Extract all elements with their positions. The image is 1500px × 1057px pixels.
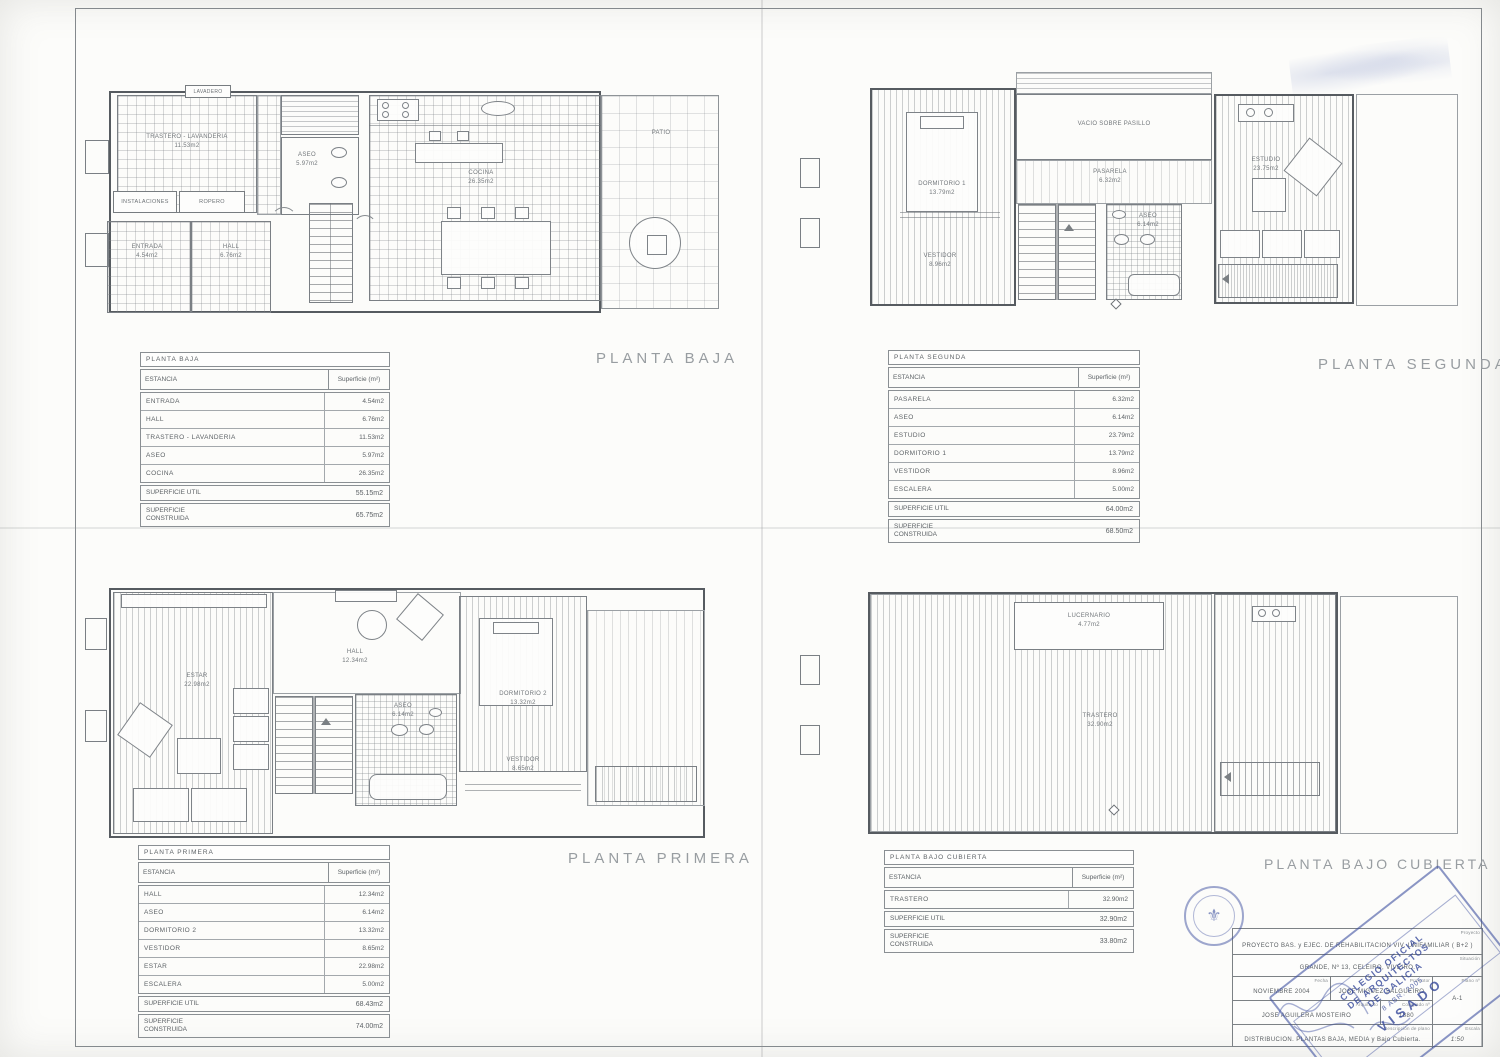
room-label-area: 6.14m2 <box>392 711 414 720</box>
counter-circle <box>1258 609 1266 617</box>
room-label-lucernario: LUCERNARIO 4.77m2 <box>1068 612 1110 630</box>
round-table <box>357 610 387 640</box>
cell-estancia: ESTAR <box>139 958 324 975</box>
table-row: COCINA26.35m2 <box>141 465 389 482</box>
superficie-util-row: SUPERFICIE UTIL 68.43m2 <box>138 996 390 1012</box>
room-label-name: ESTAR <box>184 672 209 681</box>
toilet <box>391 724 408 736</box>
cell-estancia: TRASTERO <box>885 891 1068 908</box>
room-label-name: ENTRADA <box>132 243 163 252</box>
pillow <box>493 622 539 634</box>
room-label-area: 4.54m2 <box>132 252 163 261</box>
cell-estancia: DORMITORIO 1 <box>889 445 1074 462</box>
room-label-area: 6.32m2 <box>1093 177 1127 186</box>
porch-nook <box>800 218 820 248</box>
stair-direction-arrow <box>321 718 331 725</box>
superficie-util-row: SUPERFICIE UTIL 32.90m2 <box>884 911 1134 927</box>
bathtub <box>369 774 447 800</box>
wardrobe-line <box>465 790 581 791</box>
bidet <box>331 177 347 188</box>
chair <box>447 207 461 219</box>
cell-estancia: TRASTERO - LAVANDERIA <box>141 429 324 446</box>
staircase <box>309 203 353 303</box>
pillow <box>920 116 964 129</box>
drawing-sheet: TRASTERO - LAVANDERIA 11.53m2 LAVADERO A… <box>0 0 1500 1057</box>
corridor <box>257 95 281 215</box>
cell-superficie: 5.97m2 <box>324 447 389 464</box>
counter-circle <box>1246 108 1255 117</box>
table-row: ESTAR22.98m2 <box>139 958 389 976</box>
wardrobe-line <box>465 784 581 785</box>
cell-superficie: 32.90m2 <box>1068 891 1133 908</box>
sofa <box>191 788 247 822</box>
construida-value: 74.00m2 <box>207 1020 389 1033</box>
hatched-zone <box>1016 72 1212 94</box>
room-label-aseo: ASEO 5.97m2 <box>296 151 318 169</box>
shelf-arrow <box>1222 274 1229 284</box>
room-entrada <box>107 221 191 313</box>
cell-estancia: PASARELA <box>889 391 1074 408</box>
floorplan-planta-primera: ESTAR 22.98m2 HALL 12.34m2 ASEO 6.14m2 D… <box>85 560 765 845</box>
instalaciones-label: INSTALACIONES <box>121 199 169 205</box>
superficie-construida-row: SUPERFICIE CONSTRUIDA 33.80m2 <box>884 929 1134 953</box>
cell-superficie: 13.79m2 <box>1074 445 1139 462</box>
cell-estancia: ASEO <box>139 904 324 921</box>
room-label-area: 26.35m2 <box>468 178 493 187</box>
circular-stamp-inner: ⚜ <box>1193 895 1235 937</box>
cell-superficie: 11.53m2 <box>324 429 389 446</box>
room-patio <box>601 95 719 309</box>
room-label-area: 12.34m2 <box>342 657 367 666</box>
cell-superficie: 5.00m2 <box>324 976 389 993</box>
floorplan-planta-segunda: DORMITORIO 1 13.79m2 VESTIDOR 8.96m2 VAC… <box>800 58 1465 335</box>
header-superficie: Superficie (m²) <box>1072 868 1133 887</box>
kitchen-sink <box>481 101 515 116</box>
room-label-name: PATIO <box>652 129 671 138</box>
cell-superficie: 13.32m2 <box>324 922 389 939</box>
room-label-area: 8.65m2 <box>506 765 539 774</box>
cell-estancia: HALL <box>139 886 324 903</box>
table-title: PLANTA SEGUNDA <box>888 350 1140 365</box>
header-superficie: Superficie (m²) <box>328 863 389 882</box>
room-label-name: TRASTERO - LAVANDERIA <box>146 133 227 142</box>
util-value: 55.15m2 <box>209 487 389 500</box>
table-row: ESTUDIO23.79m2 <box>889 427 1139 445</box>
lavadero-label: LAVADERO <box>194 89 223 95</box>
wardrobe-line <box>900 212 1000 213</box>
table-body: TRASTERO32.90m2 <box>884 890 1134 909</box>
room-label-area: 6.14m2 <box>1137 221 1159 230</box>
room-label-name: ASEO <box>296 151 318 160</box>
superficie-util-row: SUPERFICIE UTIL 55.15m2 <box>140 485 390 501</box>
stool <box>457 131 469 141</box>
signature-scribble <box>1270 970 1420 1050</box>
room-label-area: 8.96m2 <box>923 261 956 270</box>
floorplan-planta-bajo-cubierta: LUCERNARIO 4.77m2 TRASTERO 32.90m2 <box>800 560 1465 845</box>
util-value: 68.43m2 <box>207 998 389 1011</box>
sofa <box>133 788 189 822</box>
chair <box>447 277 461 289</box>
table-row: HALL6.76m2 <box>141 411 389 429</box>
table-row: HALL12.34m2 <box>139 886 389 904</box>
label-box-instalaciones: INSTALACIONES <box>113 191 177 213</box>
kitchen-island <box>415 143 503 163</box>
room-label-name: VESTIDOR <box>923 252 956 261</box>
escala-label: Escala <box>1465 1026 1480 1031</box>
table-body: ENTRADA4.54m2 HALL6.76m2 TRASTERO - LAVA… <box>140 392 390 483</box>
sofa <box>1304 230 1340 258</box>
table-body: HALL12.34m2 ASEO6.14m2 DORMITORIO 213.32… <box>138 885 390 994</box>
cell-superficie: 6.14m2 <box>1074 409 1139 426</box>
stair-divider <box>1056 204 1058 300</box>
room-label-estar: ESTAR 22.98m2 <box>184 672 209 690</box>
table-header: ESTANCIA Superficie (m²) <box>140 369 390 390</box>
counter-circle <box>1272 609 1280 617</box>
construida-label: SUPERFICIE CONSTRUIDA <box>139 1015 207 1037</box>
table-row: ASEO5.97m2 <box>141 447 389 465</box>
escala-value: 1:50 <box>1451 1037 1464 1044</box>
cell-estancia: ESCALERA <box>139 976 324 993</box>
cell-superficie: 26.35m2 <box>324 465 389 482</box>
label-box-ropero: ROPERO <box>179 191 245 213</box>
sofa <box>233 744 269 770</box>
construida-label: SUPERFICIE CONSTRUIDA <box>885 930 953 952</box>
bathtub <box>1128 274 1180 296</box>
shelving <box>1220 762 1320 796</box>
room-label-area: 22.98m2 <box>184 681 209 690</box>
cell-superficie: 6.76m2 <box>324 411 389 428</box>
util-label: SUPERFICIE UTIL <box>889 502 957 516</box>
table-title: PLANTA BAJO CUBIERTA <box>884 850 1134 865</box>
room-label-area: 4.77m2 <box>1068 621 1110 630</box>
table-row: ASEO6.14m2 <box>889 409 1139 427</box>
room-label-name: LUCERNARIO <box>1068 612 1110 621</box>
chair <box>515 277 529 289</box>
bidet <box>419 724 434 735</box>
room-label-trastero: TRASTERO 32.90m2 <box>1082 712 1117 730</box>
sofa <box>1262 230 1302 258</box>
room-label-aseo: ASEO 6.14m2 <box>392 702 414 720</box>
room-label-pasarela: PASARELA 6.32m2 <box>1093 168 1127 186</box>
util-label: SUPERFICIE UTIL <box>141 486 209 500</box>
cell-superficie: 6.14m2 <box>324 904 389 921</box>
room-hall <box>191 221 271 313</box>
room-label-dormitorio-2: DORMITORIO 2 13.32m2 <box>499 690 547 708</box>
porch-nook <box>800 655 820 685</box>
open-terrace <box>1356 94 1458 306</box>
porch-nook <box>85 140 109 174</box>
sofa <box>233 716 269 742</box>
room-label-aseo: ASEO 6.14m2 <box>1137 212 1159 230</box>
construida-value: 33.80m2 <box>953 935 1133 948</box>
chair <box>481 207 495 219</box>
counter-circle <box>1264 108 1273 117</box>
room-label-dormitorio-1: DORMITORIO 1 13.79m2 <box>918 180 966 198</box>
superficie-construida-row: SUPERFICIE CONSTRUIDA 65.75m2 <box>140 503 390 527</box>
hatched-zone <box>281 95 359 135</box>
cell-estancia: ASEO <box>889 409 1074 426</box>
porch-nook <box>85 618 107 650</box>
cell-superficie: 5.00m2 <box>1074 481 1139 498</box>
cell-estancia: COCINA <box>141 465 324 482</box>
shelf-arrow <box>1224 772 1231 782</box>
room-label-entrada: ENTRADA 4.54m2 <box>132 243 163 261</box>
ropero-label: ROPERO <box>199 199 225 205</box>
table-row: TRASTERO - LAVANDERIA11.53m2 <box>141 429 389 447</box>
plan-title-bajo-cubierta: PLANTA BAJO CUBIERTA <box>1264 856 1491 872</box>
area-table-planta-primera: PLANTA PRIMERA ESTANCIA Superficie (m²) … <box>138 845 390 1038</box>
table-body: PASARELA6.32m2 ASEO6.14m2 ESTUDIO23.79m2… <box>888 390 1140 499</box>
room-label-estudio: ESTUDIO 23.75m2 <box>1252 156 1281 174</box>
toilet <box>331 147 347 158</box>
door-swing-arc <box>271 207 297 233</box>
room-label-vacio: VACIO SOBRE PASILLO <box>1078 120 1151 129</box>
header-estancia: ESTANCIA <box>139 863 328 882</box>
header-superficie: Superficie (m²) <box>328 370 389 389</box>
plan-title-baja: PLANTA BAJA <box>596 350 738 367</box>
header-superficie: Superficie (m²) <box>1078 368 1139 387</box>
room-label-area: 11.53m2 <box>146 142 227 151</box>
cell-superficie: 8.65m2 <box>324 940 389 957</box>
low-table <box>177 738 221 774</box>
superficie-construida-row: SUPERFICIE CONSTRUIDA 74.00m2 <box>138 1014 390 1038</box>
staircase-flight <box>1058 204 1096 300</box>
room-label-patio: PATIO <box>652 129 671 138</box>
area-table-planta-segunda: PLANTA SEGUNDA ESTANCIA Superficie (m²) … <box>888 350 1140 543</box>
util-value: 32.90m2 <box>953 913 1133 926</box>
construida-value: 68.50m2 <box>957 525 1139 538</box>
porch-nook <box>85 710 107 742</box>
room-label-hall: HALL 12.34m2 <box>342 648 367 666</box>
room-label-name: DORMITORIO 1 <box>918 180 966 189</box>
cell-superficie: 4.54m2 <box>324 393 389 410</box>
sofa <box>233 688 269 714</box>
room-label-area: 13.32m2 <box>499 699 547 708</box>
stair-divider <box>313 696 315 794</box>
cell-superficie: 22.98m2 <box>324 958 389 975</box>
cell-estancia: HALL <box>141 411 324 428</box>
table-title: PLANTA PRIMERA <box>138 845 390 860</box>
cell-estancia: ENTRADA <box>141 393 324 410</box>
plan-title-primera: PLANTA PRIMERA <box>568 850 753 867</box>
burner <box>402 102 409 109</box>
room-label-name: ASEO <box>1137 212 1159 221</box>
porch-nook <box>85 233 109 267</box>
room-label-area: 6.76m2 <box>220 252 242 261</box>
room-label-name: COCINA <box>468 169 493 178</box>
cell-superficie: 23.79m2 <box>1074 427 1139 444</box>
room-label-area: 23.75m2 <box>1252 165 1281 174</box>
burner <box>382 111 389 118</box>
table-row: TRASTERO32.90m2 <box>885 891 1133 908</box>
label-box-lavadero: LAVADERO <box>185 85 231 98</box>
room-label-area: 32.90m2 <box>1082 721 1117 730</box>
superficie-construida-row: SUPERFICIE CONSTRUIDA 68.50m2 <box>888 519 1140 543</box>
staircase-flight <box>315 696 353 794</box>
construida-value: 65.75m2 <box>209 509 389 522</box>
stair-divider <box>330 203 331 303</box>
wardrobe-line <box>900 217 1000 218</box>
table-row: PASARELA6.32m2 <box>889 391 1139 409</box>
sofa <box>1220 230 1260 258</box>
util-value: 64.00m2 <box>957 503 1139 516</box>
room-label-name: ASEO <box>392 702 414 711</box>
table-row: ESCALERA5.00m2 <box>889 481 1139 498</box>
stair-direction-arrow <box>1064 224 1074 231</box>
room-label-name: PASARELA <box>1093 168 1127 177</box>
table-row: DORMITORIO 113.79m2 <box>889 445 1139 463</box>
sink <box>429 708 442 717</box>
cell-estancia: ESTUDIO <box>889 427 1074 444</box>
open-terrace <box>1340 596 1458 834</box>
util-label: SUPERFICIE UTIL <box>139 997 207 1011</box>
room-label-vestidor: VESTIDOR 8.96m2 <box>923 252 956 270</box>
room-label-cocina: COCINA 26.35m2 <box>468 169 493 187</box>
table-row: ASEO6.14m2 <box>139 904 389 922</box>
cell-superficie: 6.32m2 <box>1074 391 1139 408</box>
cell-superficie: 8.96m2 <box>1074 463 1139 480</box>
header-estancia: ESTANCIA <box>885 868 1072 887</box>
cell-estancia: VESTIDOR <box>889 463 1074 480</box>
room-label-name: VACIO SOBRE PASILLO <box>1078 120 1151 129</box>
room-label-name: DORMITORIO 2 <box>499 690 547 699</box>
table-header: ESTANCIA Superficie (m²) <box>884 867 1134 888</box>
room-label-name: ESTUDIO <box>1252 156 1281 165</box>
table-row: DORMITORIO 213.32m2 <box>139 922 389 940</box>
table-row: VESTIDOR8.96m2 <box>889 463 1139 481</box>
superficie-util-row: SUPERFICIE UTIL 64.00m2 <box>888 501 1140 517</box>
room-label-area: 5.97m2 <box>296 160 318 169</box>
side-table <box>1252 178 1286 212</box>
room-label-area: 13.79m2 <box>918 189 966 198</box>
side-room <box>1214 594 1336 832</box>
cell-estancia: VESTIDOR <box>139 940 324 957</box>
table-row: VESTIDOR8.65m2 <box>139 940 389 958</box>
stool <box>429 131 441 141</box>
shelf <box>335 590 397 602</box>
staircase-flight <box>1018 204 1056 300</box>
room-label-name: HALL <box>342 648 367 657</box>
porch-nook <box>800 158 820 188</box>
table-header: ESTANCIA Superficie (m²) <box>138 862 390 883</box>
chair <box>481 277 495 289</box>
cell-estancia: ESCALERA <box>889 481 1074 498</box>
header-estancia: ESTANCIA <box>889 368 1078 387</box>
room-label-name: TRASTERO <box>1082 712 1117 721</box>
area-table-planta-baja: PLANTA BAJA ESTANCIA Superficie (m²) ENT… <box>140 352 390 527</box>
table-row: ESCALERA5.00m2 <box>139 976 389 993</box>
bookcase <box>121 594 267 608</box>
room-label-trastero: TRASTERO - LAVANDERIA 11.53m2 <box>146 133 227 151</box>
room-label-name: VESTIDOR <box>506 756 539 765</box>
shelving <box>595 766 697 802</box>
table-row: ENTRADA4.54m2 <box>141 393 389 411</box>
plan-title-segunda: PLANTA SEGUNDA <box>1318 356 1500 373</box>
circular-stamp: ⚜ <box>1184 886 1244 946</box>
bidet <box>1140 234 1155 245</box>
planter-square <box>647 235 667 255</box>
burner <box>402 111 409 118</box>
sink <box>1112 210 1126 219</box>
table-title: PLANTA BAJA <box>140 352 390 367</box>
counter-line <box>369 125 601 126</box>
porch-nook <box>800 725 820 755</box>
util-label: SUPERFICIE UTIL <box>885 912 953 926</box>
room-label-vestidor: VESTIDOR 8.65m2 <box>506 756 539 774</box>
toilet <box>1114 234 1129 245</box>
construida-label: SUPERFICIE CONSTRUIDA <box>141 504 209 526</box>
area-table-planta-bajo-cubierta: PLANTA BAJO CUBIERTA ESTANCIA Superficie… <box>884 850 1134 953</box>
staircase-flight <box>275 696 313 794</box>
burner <box>382 102 389 109</box>
cell-estancia: DORMITORIO 2 <box>139 922 324 939</box>
floorplan-planta-baja: TRASTERO - LAVANDERIA 11.53m2 LAVADERO A… <box>85 85 765 350</box>
shelving <box>1218 264 1338 298</box>
level-marker <box>1110 298 1121 309</box>
crest-icon: ⚜ <box>1206 906 1221 926</box>
cell-estancia: ASEO <box>141 447 324 464</box>
room-label-name: HALL <box>220 243 242 252</box>
cell-superficie: 12.34m2 <box>324 886 389 903</box>
dining-table <box>441 221 551 275</box>
room-label-hall: HALL 6.76m2 <box>220 243 242 261</box>
construida-label: SUPERFICIE CONSTRUIDA <box>889 520 957 542</box>
chair <box>515 207 529 219</box>
header-estancia: ESTANCIA <box>141 370 328 389</box>
table-header: ESTANCIA Superficie (m²) <box>888 367 1140 388</box>
